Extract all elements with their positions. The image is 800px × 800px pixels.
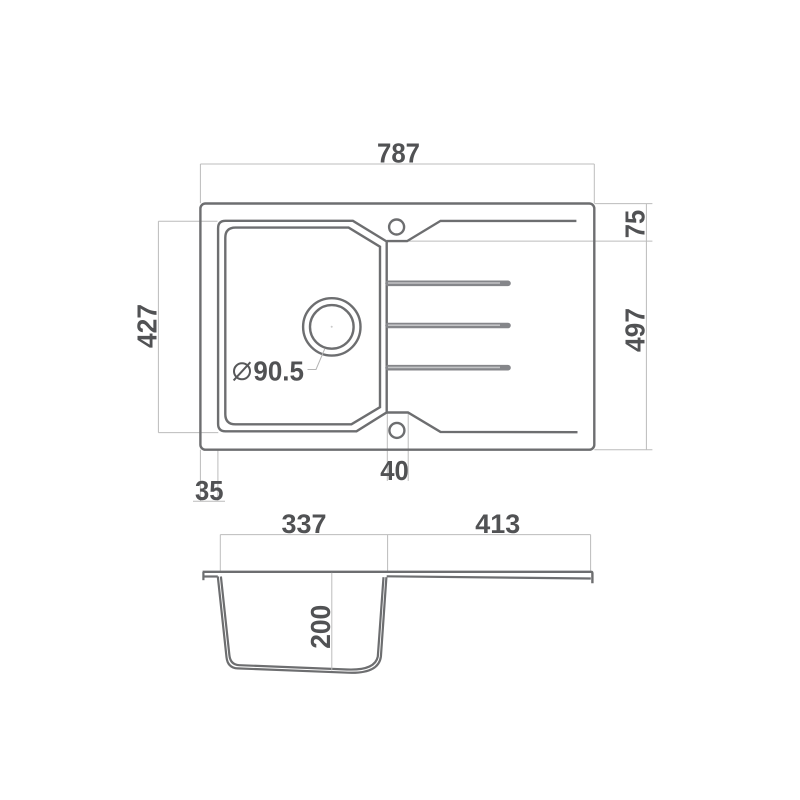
svg-text:337: 337 [282, 509, 327, 539]
svg-text:413: 413 [475, 509, 520, 539]
svg-text:35: 35 [195, 475, 224, 506]
svg-text:40: 40 [380, 455, 409, 486]
svg-text:427: 427 [132, 304, 163, 348]
svg-text:90.5: 90.5 [253, 356, 304, 387]
svg-text:497: 497 [620, 308, 651, 352]
svg-text:787: 787 [377, 138, 420, 169]
svg-text:200: 200 [305, 605, 336, 649]
svg-text:75: 75 [620, 210, 651, 239]
